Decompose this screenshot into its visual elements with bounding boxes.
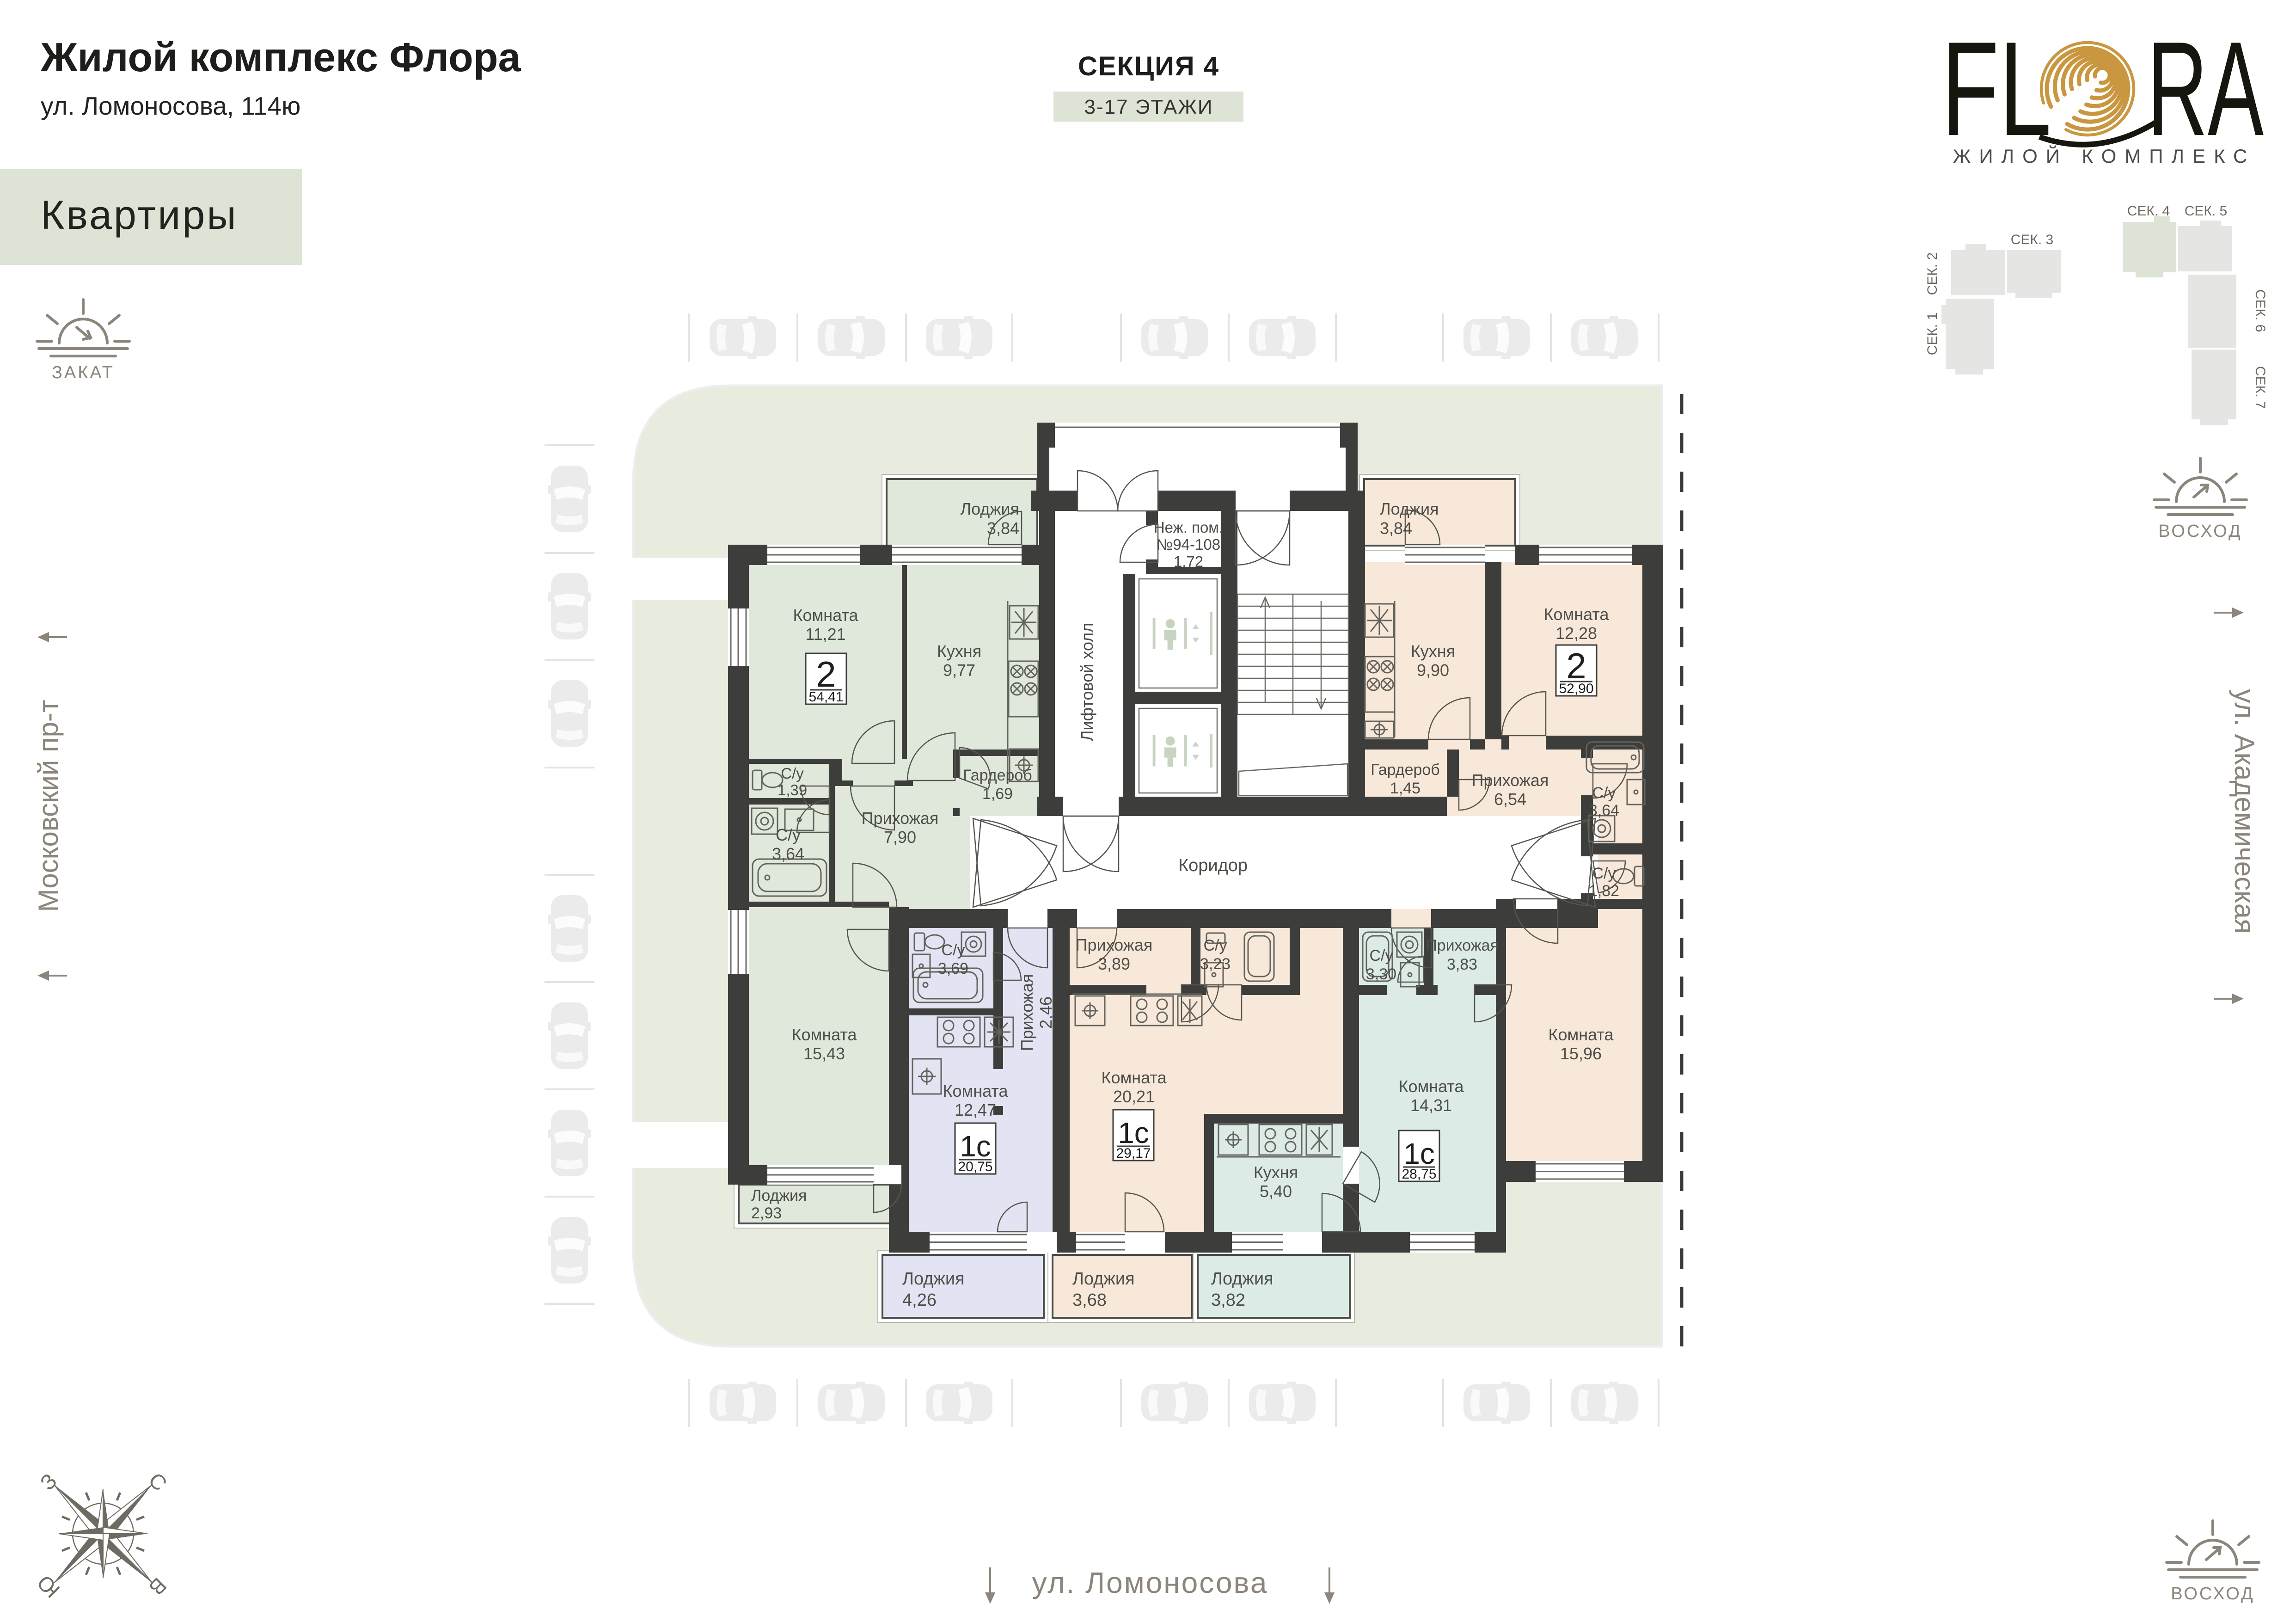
svg-text:FL: FL <box>1941 14 2051 164</box>
svg-text:Комната: Комната <box>1549 1025 1614 1044</box>
svg-text:1,82: 1,82 <box>1589 882 1619 900</box>
svg-text:3,64: 3,64 <box>1589 802 1619 819</box>
svg-text:ул. Ломоносова: ул. Ломоносова <box>1032 1566 1268 1599</box>
svg-text:С/у: С/у <box>942 941 965 959</box>
svg-text:15,43: 15,43 <box>803 1044 845 1063</box>
svg-text:СЕК. 2: СЕК. 2 <box>1925 252 1940 295</box>
svg-text:Жилой комплекс Флора: Жилой комплекс Флора <box>40 34 521 80</box>
svg-text:1,45: 1,45 <box>1390 780 1420 797</box>
svg-text:№94-108: №94-108 <box>1157 536 1220 553</box>
svg-text:Комната: Комната <box>793 606 859 625</box>
svg-text:52,90: 52,90 <box>1559 681 1593 696</box>
svg-text:СЕК. 3: СЕК. 3 <box>2011 232 2054 247</box>
svg-text:2,46: 2,46 <box>1036 996 1055 1029</box>
svg-text:СЕК. 5: СЕК. 5 <box>2185 203 2228 219</box>
svg-text:Комната: Комната <box>1102 1068 1167 1087</box>
svg-text:7,90: 7,90 <box>884 828 916 847</box>
svg-text:Лоджия: Лоджия <box>960 499 1019 518</box>
svg-text:Коридор: Коридор <box>1178 856 1248 875</box>
svg-text:3,64: 3,64 <box>772 844 804 863</box>
svg-text:СЕК. 6: СЕК. 6 <box>2253 289 2268 332</box>
svg-text:4,26: 4,26 <box>902 1290 937 1310</box>
svg-text:Прихожая: Прихожая <box>1472 771 1549 790</box>
svg-text:С/у: С/у <box>1204 937 1227 954</box>
svg-text:Лоджия: Лоджия <box>902 1269 965 1289</box>
svg-text:Лоджия: Лоджия <box>1211 1269 1274 1289</box>
svg-text:Комната: Комната <box>943 1081 1009 1100</box>
svg-text:С/у: С/у <box>781 765 804 782</box>
svg-text:1,72: 1,72 <box>1174 553 1203 570</box>
svg-text:20,21: 20,21 <box>1113 1087 1155 1106</box>
svg-text:Лоджия: Лоджия <box>1380 499 1439 518</box>
svg-text:2: 2 <box>816 654 836 694</box>
svg-text:Комната: Комната <box>1544 605 1610 624</box>
svg-text:1,39: 1,39 <box>778 781 807 799</box>
svg-text:20,75: 20,75 <box>958 1159 992 1174</box>
svg-text:1с: 1с <box>1403 1137 1435 1170</box>
svg-text:5,40: 5,40 <box>1260 1182 1292 1201</box>
svg-text:12,28: 12,28 <box>1555 624 1597 643</box>
svg-text:ул. Ломоносова, 114ю: ул. Ломоносова, 114ю <box>41 92 300 120</box>
svg-text:29,17: 29,17 <box>1116 1146 1151 1161</box>
svg-text:Квартиры: Квартиры <box>41 192 238 238</box>
svg-text:2,93: 2,93 <box>751 1204 782 1222</box>
svg-text:6,54: 6,54 <box>1494 790 1526 809</box>
svg-text:ЗАКАТ: ЗАКАТ <box>52 363 115 382</box>
svg-text:Кухня: Кухня <box>1254 1163 1298 1182</box>
svg-text:3,84: 3,84 <box>1380 519 1412 538</box>
svg-text:СЕК. 7: СЕК. 7 <box>2253 366 2268 409</box>
svg-text:3,84: 3,84 <box>987 519 1019 538</box>
svg-text:ЖИЛОЙ КОМПЛЕКС: ЖИЛОЙ КОМПЛЕКС <box>1953 145 2256 167</box>
svg-text:С/у: С/у <box>1592 784 1616 802</box>
svg-text:12,47: 12,47 <box>955 1100 996 1119</box>
svg-text:1с: 1с <box>1118 1116 1149 1149</box>
svg-text:1,69: 1,69 <box>982 785 1013 803</box>
svg-text:ул. Академическая: ул. Академическая <box>2229 689 2260 934</box>
svg-text:3-17 ЭТАЖИ: 3-17 ЭТАЖИ <box>1084 96 1213 118</box>
svg-text:3,30: 3,30 <box>1366 965 1396 983</box>
svg-text:1с: 1с <box>960 1130 991 1163</box>
svg-text:Лифтовой холл: Лифтовой холл <box>1078 623 1096 741</box>
svg-text:3,83: 3,83 <box>1447 956 1477 973</box>
svg-text:ВОСХОД: ВОСХОД <box>2158 522 2242 541</box>
svg-text:3,68: 3,68 <box>1072 1290 1107 1310</box>
svg-text:Прихожая: Прихожая <box>1426 937 1499 954</box>
svg-text:Прихожая: Прихожая <box>862 809 939 828</box>
svg-text:Лоджия: Лоджия <box>1072 1269 1135 1289</box>
svg-text:С/у: С/у <box>1370 947 1393 965</box>
svg-text:Кухня: Кухня <box>937 642 981 661</box>
svg-text:Лоджия: Лоджия <box>751 1187 807 1204</box>
svg-text:3,89: 3,89 <box>1098 954 1130 973</box>
svg-text:14,31: 14,31 <box>1410 1096 1452 1115</box>
svg-text:СЕК. 4: СЕК. 4 <box>2127 203 2170 219</box>
svg-text:Прихожая: Прихожая <box>1076 935 1153 954</box>
svg-text:9,90: 9,90 <box>1417 661 1449 680</box>
svg-text:Гардероб: Гардероб <box>1371 761 1440 779</box>
svg-text:С/у: С/у <box>776 825 801 844</box>
svg-text:Кухня: Кухня <box>1411 642 1455 661</box>
svg-text:15,96: 15,96 <box>1560 1044 1602 1063</box>
svg-text:RA: RA <box>2147 14 2264 164</box>
svg-text:2: 2 <box>1566 645 1586 686</box>
svg-text:Гардероб: Гардероб <box>963 767 1032 784</box>
svg-text:3,69: 3,69 <box>938 960 968 977</box>
svg-text:Неж. пом.: Неж. пом. <box>1154 519 1223 536</box>
svg-text:СЕКЦИЯ 4: СЕКЦИЯ 4 <box>1078 51 1219 81</box>
svg-text:9,77: 9,77 <box>943 661 975 680</box>
svg-text:28,75: 28,75 <box>1402 1167 1436 1182</box>
svg-text:Комната: Комната <box>792 1025 857 1044</box>
svg-text:11,21: 11,21 <box>805 625 845 644</box>
svg-text:СЕК. 1: СЕК. 1 <box>1925 313 1940 356</box>
svg-text:Московский пр-т: Московский пр-т <box>33 700 64 912</box>
svg-text:С/у: С/у <box>1592 865 1616 882</box>
svg-text:Прихожая: Прихожая <box>1017 974 1036 1051</box>
svg-text:3,82: 3,82 <box>1211 1290 1245 1310</box>
svg-text:Комната: Комната <box>1399 1077 1464 1096</box>
svg-text:ВОСХОД: ВОСХОД <box>2171 1584 2255 1604</box>
svg-text:54,41: 54,41 <box>808 689 843 705</box>
svg-text:3,23: 3,23 <box>1200 955 1231 973</box>
